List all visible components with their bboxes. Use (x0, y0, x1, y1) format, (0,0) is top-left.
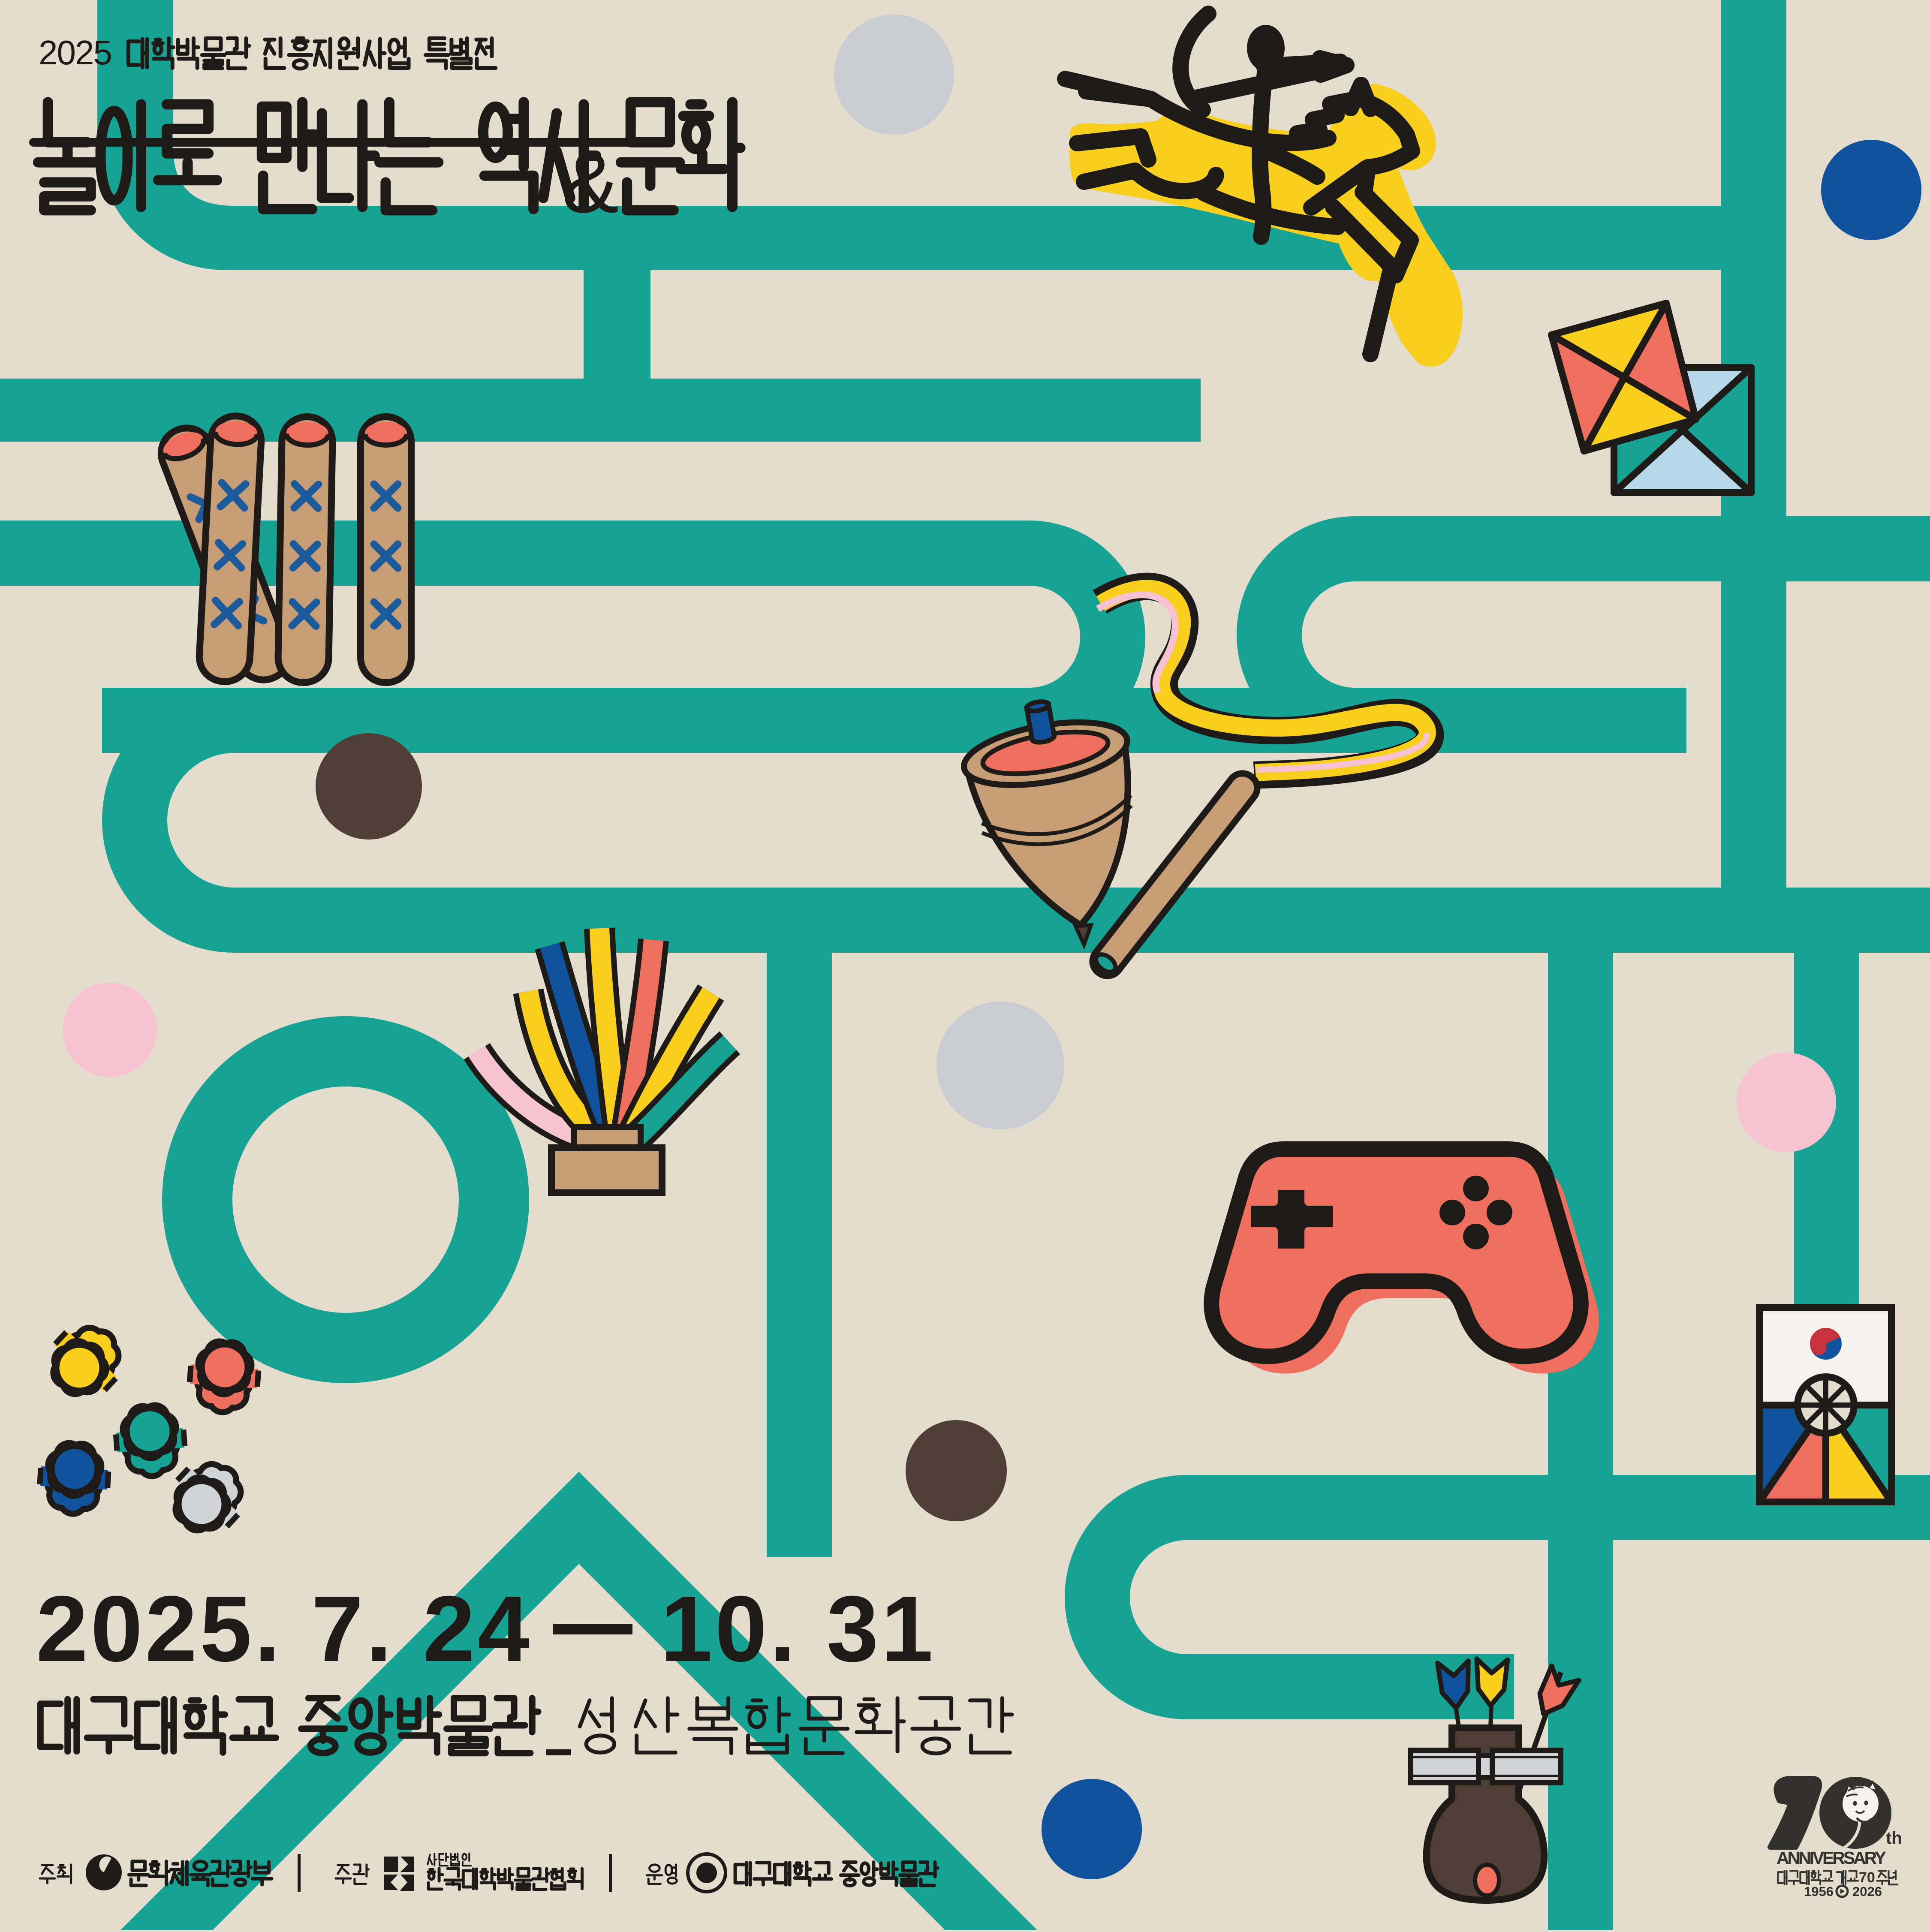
svg-text:2025: 2025 (39, 33, 111, 72)
svg-text:ANNIVERSARY: ANNIVERSARY (1776, 1848, 1886, 1868)
svg-text:2026: 2026 (1852, 1884, 1882, 1899)
svg-text:1956: 1956 (1804, 1884, 1834, 1899)
svg-text:10. 31: 10. 31 (660, 1577, 936, 1681)
svg-text:70: 70 (1859, 1869, 1875, 1886)
svg-text:th: th (1886, 1829, 1902, 1848)
svg-text:2025. 7. 24: 2025. 7. 24 (36, 1577, 532, 1681)
svg-text:&: & (562, 135, 619, 231)
